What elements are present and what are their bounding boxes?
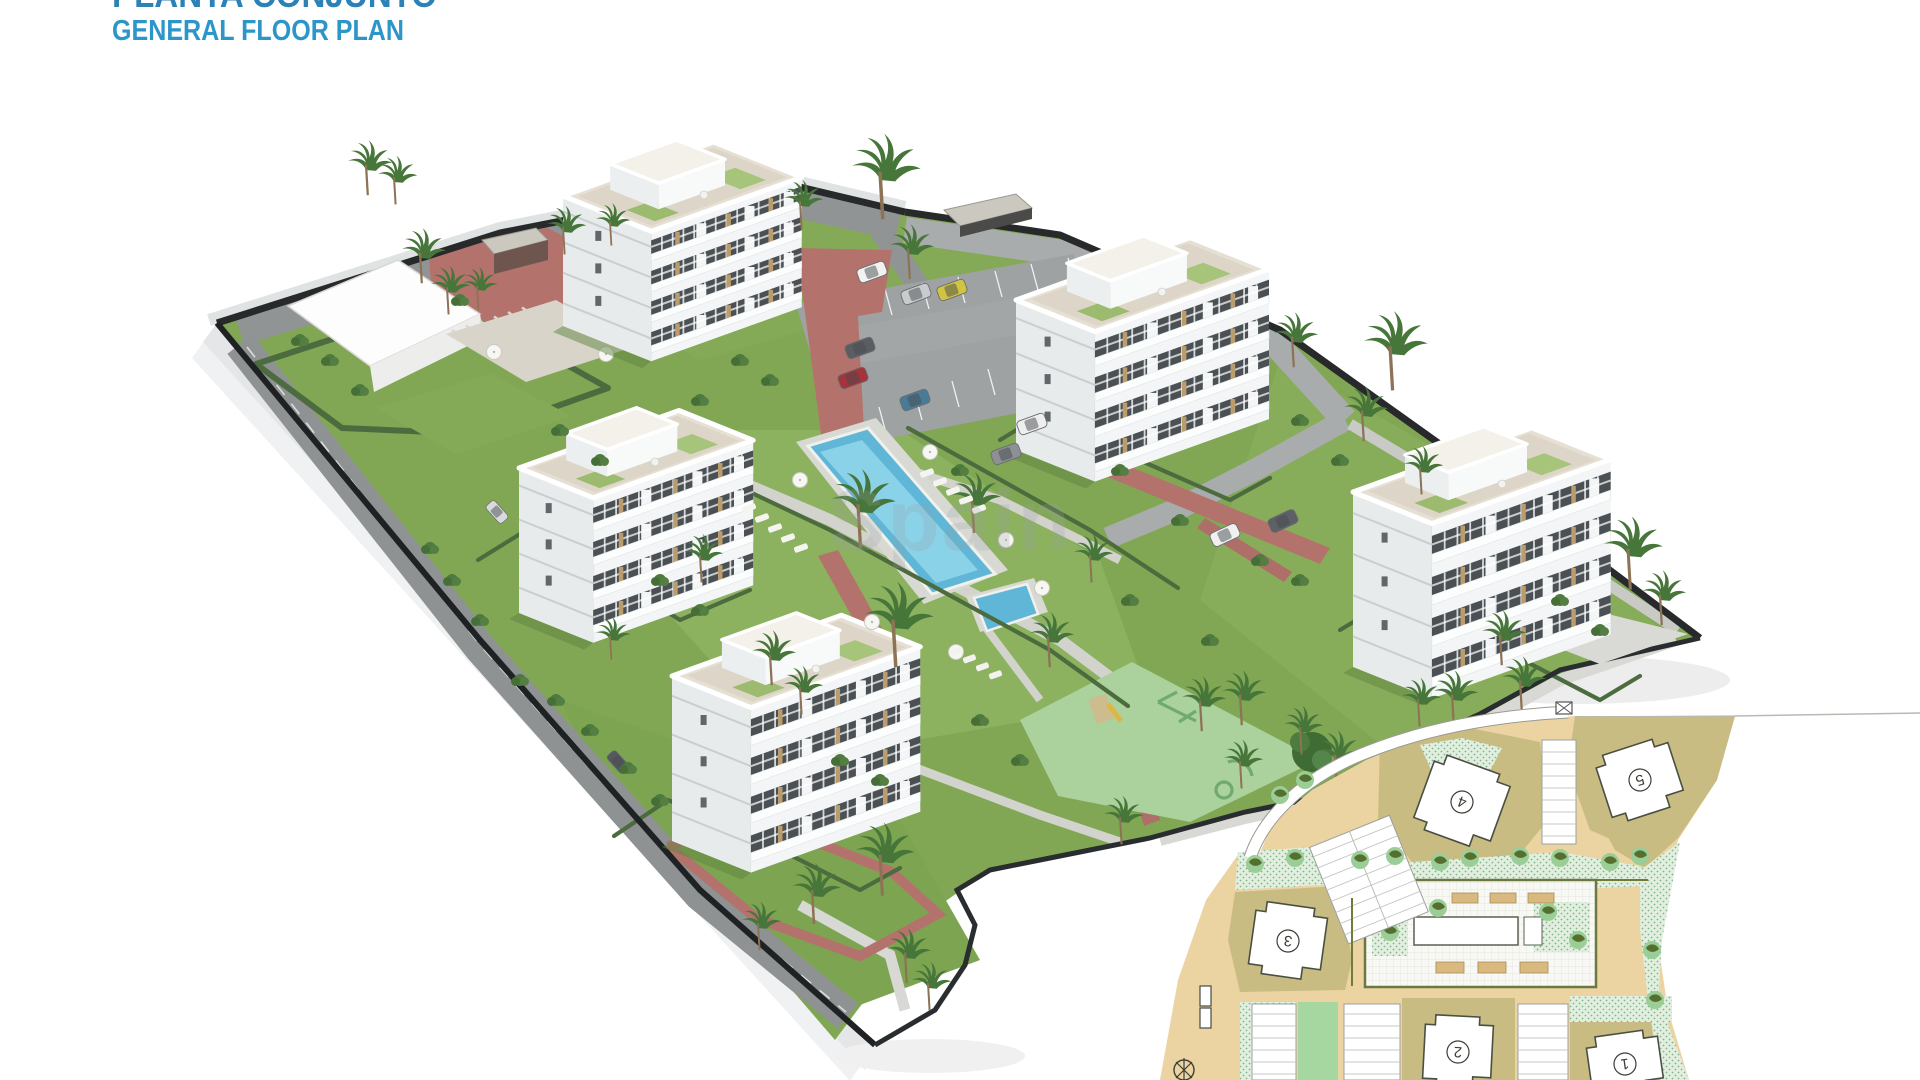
svg-text:GENERAL FLOOR PLAN: GENERAL FLOOR PLAN [112,15,404,47]
svg-text:PLANTA CONJUNTO: PLANTA CONJUNTO [112,0,437,15]
svg-text:Spain: Spain [828,473,1072,569]
svg-text:2: 2 [1453,1043,1462,1060]
